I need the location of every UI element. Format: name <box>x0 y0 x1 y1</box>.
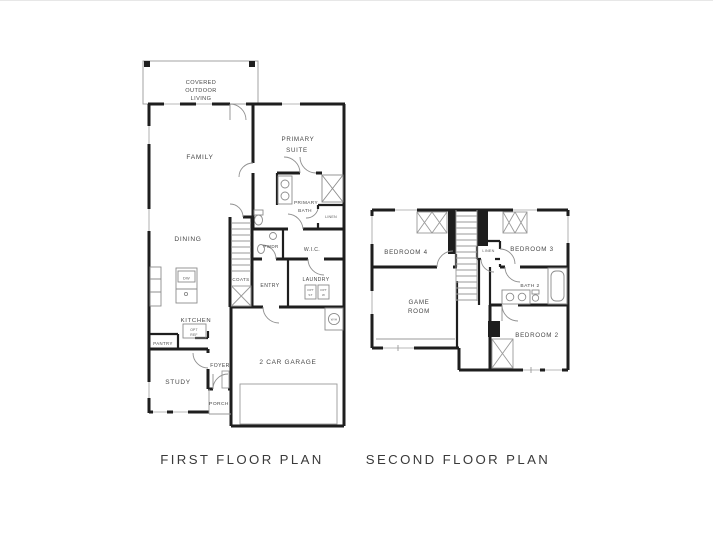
floor-plan-drawing: COVERED OUTDOOR LIVING FAMILY PRIMARY SU… <box>0 1 713 559</box>
label-opt-box1-line2: ST <box>308 293 312 297</box>
room-label-primary-bath-line2: BATH <box>298 208 312 213</box>
first-floor-labels: COVERED OUTDOOR LIVING FAMILY PRIMARY SU… <box>153 80 337 407</box>
room-label-primary-suite-line1: PRIMARY <box>282 136 315 143</box>
bath2-tub <box>548 268 567 304</box>
label-opt-box2-line2: W <box>322 293 325 297</box>
first-floor-stairs <box>232 223 252 306</box>
primary-bath-vanity <box>278 176 292 204</box>
stair-wall-block <box>448 210 456 254</box>
shower <box>322 175 343 202</box>
stair-wall-block <box>477 210 488 246</box>
garage-door-outline <box>240 384 337 424</box>
room-label-covered-line1: COVERED <box>186 80 216 86</box>
room-label-family: FAMILY <box>186 154 213 161</box>
second-floor-stairs <box>456 210 477 301</box>
label-water-heater: W/H <box>331 318 337 322</box>
entry-sidelight <box>222 371 229 388</box>
room-label-linen2: LINEN <box>482 249 494 253</box>
room-label-dining: DINING <box>174 236 201 243</box>
floor-plan-page: COVERED OUTDOOR LIVING FAMILY PRIMARY SU… <box>0 0 713 558</box>
primary-bath-toilet <box>254 210 263 225</box>
powder-room-fixtures <box>258 233 277 254</box>
room-label-primary-suite-line2: SUITE <box>286 147 308 154</box>
second-floor-caption: SECOND FLOOR PLAN <box>366 452 550 467</box>
kitchen-counter <box>150 267 161 306</box>
room-label-porch: PORCH <box>209 401 229 407</box>
room-label-covered-line2: OUTDOOR <box>185 88 216 94</box>
bedroom4-closet-doors <box>417 212 447 233</box>
second-floor-plan: BEDROOM 4 LINEN BEDROOM 3 BATH 2 GAME RO… <box>372 210 568 373</box>
room-label-game-line1: GAME <box>408 299 429 306</box>
room-label-bath2: BATH 2 <box>520 283 539 289</box>
room-label-pwdr: PWDR <box>263 244 279 249</box>
room-label-laundry: LAUNDRY <box>302 277 329 283</box>
label-opt-box1-line1: OPT <box>307 288 314 292</box>
porch-post <box>249 61 255 67</box>
second-floor-labels: BEDROOM 4 LINEN BEDROOM 3 BATH 2 GAME RO… <box>384 246 558 339</box>
label-opt-box2-line1: OPT <box>320 288 327 292</box>
room-label-game-line2: ROOM <box>408 308 430 315</box>
room-label-kitchen: KITCHEN <box>181 318 212 324</box>
room-label-bedroom3: BEDROOM 3 <box>510 246 553 253</box>
room-label-primary-bath-line1: PRIMARY <box>294 200 319 205</box>
room-label-linen: LINEN <box>325 215 337 219</box>
bedroom2-wall-block <box>488 321 500 337</box>
first-floor-fixtures <box>150 175 343 424</box>
room-label-covered-line3: LIVING <box>191 96 212 102</box>
label-dw: DW <box>183 276 190 281</box>
room-label-wic: W.I.C. <box>304 247 320 253</box>
kitchen-island <box>176 268 197 303</box>
bath2-toilet <box>532 290 539 301</box>
room-label-entry: ENTRY <box>260 283 279 289</box>
room-label-bedroom2: BEDROOM 2 <box>515 332 558 339</box>
porch-post <box>144 61 150 67</box>
bedroom3-closet-doors <box>503 212 527 233</box>
first-floor-plan: COVERED OUTDOOR LIVING FAMILY PRIMARY SU… <box>143 61 345 426</box>
room-label-coats: COATS <box>232 277 249 282</box>
room-label-pantry: PANTRY <box>153 341 172 346</box>
label-opt-ref-line1: OPT <box>190 328 198 332</box>
room-label-study: STUDY <box>165 379 191 386</box>
bath2-vanity <box>502 290 530 304</box>
first-floor-caption: FIRST FLOOR PLAN <box>160 452 323 467</box>
bedroom2-closet-doors <box>492 339 513 368</box>
label-opt-ref-line2: REF <box>190 333 197 337</box>
room-label-garage: 2 CAR GARAGE <box>259 359 316 366</box>
room-label-foyer: FOYER <box>210 363 230 369</box>
room-label-bedroom4: BEDROOM 4 <box>384 249 427 256</box>
